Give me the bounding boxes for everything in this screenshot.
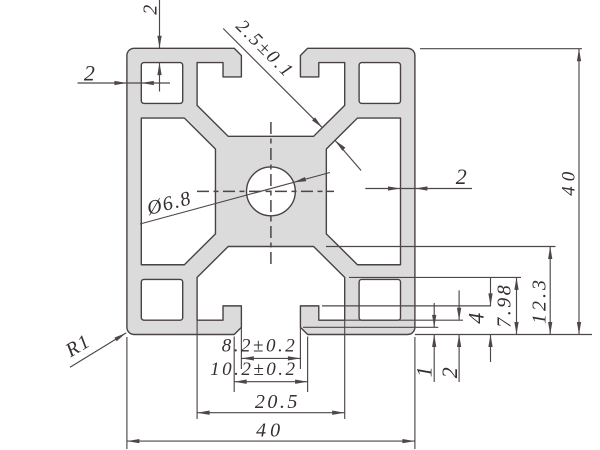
svg-text:2: 2 [139,3,161,15]
svg-text:2: 2 [84,60,97,85]
svg-text:2: 2 [437,365,462,378]
svg-text:8.2±0.2: 8.2±0.2 [222,335,297,356]
svg-text:20.5: 20.5 [255,391,300,413]
svg-text:7.98: 7.98 [494,283,516,328]
svg-text:40: 40 [256,420,284,442]
svg-text:4: 4 [464,311,489,324]
svg-text:10.2±0.2: 10.2±0.2 [210,359,297,380]
svg-text:2: 2 [456,164,469,189]
svg-text:40: 40 [558,167,579,196]
svg-text:12.3: 12.3 [529,277,551,324]
